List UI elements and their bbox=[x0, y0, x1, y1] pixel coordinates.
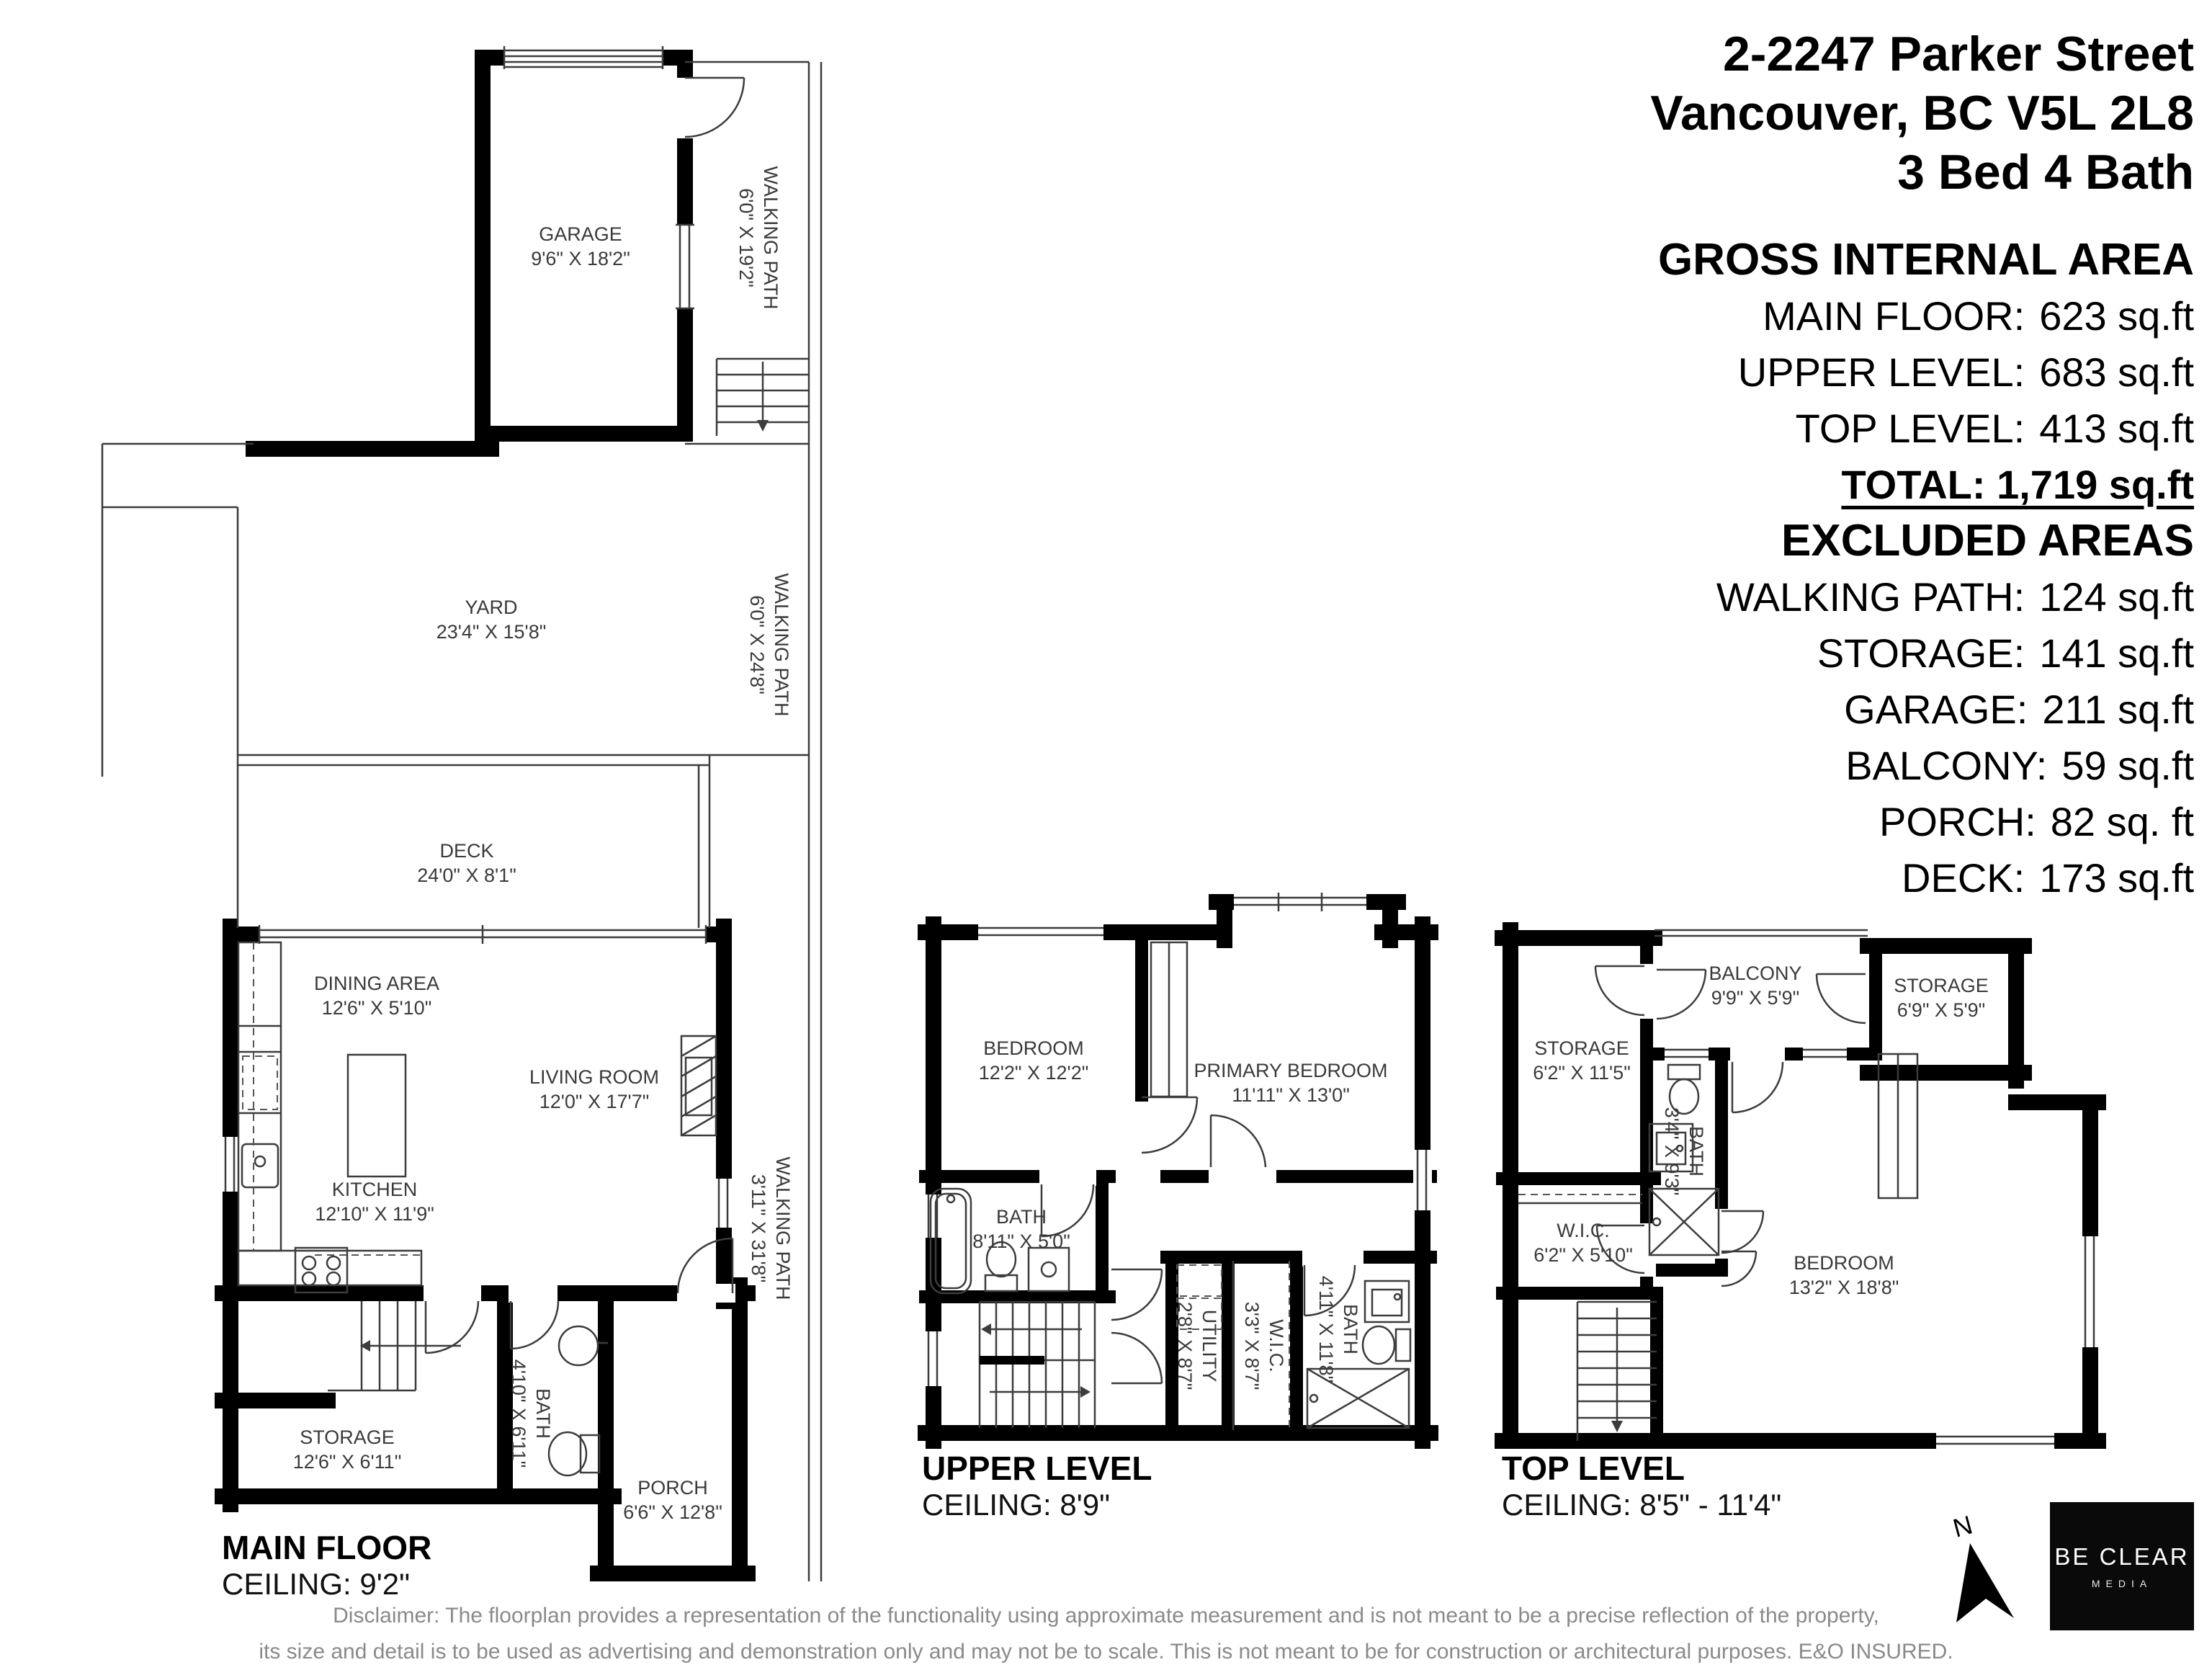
gross-area-title: GROSS INTERNAL AREA bbox=[1650, 232, 2194, 288]
room-label-wic-upper: W.I.C. 3'3" X 8'7" bbox=[1240, 1302, 1289, 1390]
room-dims: 9'6" X 18'2" bbox=[531, 246, 630, 271]
area-label: UPPER LEVEL: bbox=[1738, 349, 2025, 395]
room-dims: 12'6" X 6'11" bbox=[293, 1450, 402, 1474]
disclaimer-line: its size and detail is to be used as adv… bbox=[0, 1634, 2212, 1670]
area-value: 413 sq.ft bbox=[2039, 406, 2194, 451]
area-row: STORAGE:141 sq.ft bbox=[1650, 625, 2194, 682]
room-name: DINING AREA bbox=[314, 971, 439, 996]
room-label-walking-path-b: WALKING PATH 6'0" X 24'8" bbox=[745, 573, 794, 716]
room-name: WALKING PATH bbox=[769, 573, 794, 716]
area-value: 683 sq.ft bbox=[2039, 349, 2194, 395]
room-name: W.I.C. bbox=[1264, 1302, 1289, 1390]
logo-line2: MEDIA bbox=[2092, 1578, 2152, 1589]
room-label-balcony: BALCONY 9'9" X 5'9" bbox=[1709, 961, 1801, 1010]
room-dims: 11'11" X 13'0" bbox=[1194, 1083, 1387, 1107]
room-dims: 6'0" X 24'8" bbox=[745, 573, 769, 716]
info-column: 2-2247 Parker Street Vancouver, BC V5L 2… bbox=[1650, 24, 2194, 906]
area-label: WALKING PATH: bbox=[1716, 574, 2025, 620]
room-dims: 6'0" X 19'2" bbox=[734, 166, 758, 309]
room-label-bath-upper: BATH 8'11" X 5'0" bbox=[972, 1205, 1070, 1254]
room-dims: 6'9" X 5'9" bbox=[1894, 998, 1989, 1022]
floor-name: TOP LEVEL bbox=[1502, 1450, 1781, 1487]
room-name: BEDROOM bbox=[1789, 1251, 1899, 1275]
disclaimer-line: Disclaimer: The floorplan provides a rep… bbox=[0, 1598, 2212, 1634]
room-name: BATH bbox=[531, 1359, 555, 1468]
room-name: WALKING PATH bbox=[771, 1156, 795, 1300]
room-dims: 13'2" X 18'8" bbox=[1789, 1275, 1899, 1300]
room-name: BATH bbox=[1338, 1276, 1363, 1383]
area-label: DECK: bbox=[1902, 855, 2025, 901]
room-name: STORAGE bbox=[1894, 973, 1989, 998]
room-label-porch: PORCH 6'6" X 12'8" bbox=[623, 1475, 722, 1524]
area-label: MAIN FLOOR: bbox=[1763, 293, 2025, 339]
area-label: GARAGE: bbox=[1844, 687, 2028, 732]
logo-line1: BE CLEAR bbox=[2054, 1543, 2189, 1571]
floor-name: MAIN FLOOR bbox=[222, 1529, 431, 1566]
room-name: UTILITY bbox=[1197, 1302, 1222, 1390]
floor-ceiling: CEILING: 8'5" - 11'4" bbox=[1502, 1487, 1781, 1523]
area-row: BALCONY:59 sq.ft bbox=[1650, 738, 2194, 794]
area-value: 124 sq.ft bbox=[2039, 574, 2194, 620]
address-line: 2-2247 Parker Street bbox=[1650, 24, 2194, 84]
room-dims: 23'4" X 15'8" bbox=[436, 620, 547, 644]
floorplan-sheet: { "header": { "address_line1": "2-2247 P… bbox=[0, 0, 2212, 1660]
room-label-yard: YARD 23'4" X 15'8" bbox=[436, 595, 547, 644]
area-row: WALKING PATH:124 sq.ft bbox=[1650, 569, 2194, 625]
room-dims: 12'0" X 17'7" bbox=[529, 1089, 659, 1114]
room-name: W.I.C. bbox=[1533, 1218, 1633, 1243]
room-label-bath-top: BATH 3'4" X 9'3" bbox=[1660, 1107, 1709, 1196]
room-dims: 2'8" X 8'7" bbox=[1173, 1302, 1197, 1390]
floor-ceiling: CEILING: 9'2" bbox=[222, 1566, 431, 1602]
room-dims: 4'10" X 6'11" bbox=[506, 1359, 531, 1468]
floor-name: UPPER LEVEL bbox=[922, 1450, 1152, 1487]
room-label-kitchen: KITCHEN 12'10" X 11'9" bbox=[315, 1177, 434, 1226]
room-name: DECK bbox=[417, 839, 516, 863]
area-label: STORAGE: bbox=[1817, 630, 2025, 676]
area-row: PORCH:82 sq. ft bbox=[1650, 794, 2194, 850]
area-value: 173 sq.ft bbox=[2039, 855, 2194, 901]
room-dims: 8'11" X 5'0" bbox=[972, 1229, 1070, 1254]
room-dims: 9'9" X 5'9" bbox=[1709, 986, 1801, 1010]
excluded-areas-title: EXCLUDED AREAS bbox=[1650, 513, 2194, 569]
room-label-primary-bedroom: PRIMARY BEDROOM 11'11" X 13'0" bbox=[1194, 1058, 1387, 1107]
room-name: BATH bbox=[972, 1205, 1070, 1229]
room-name: STORAGE bbox=[1533, 1036, 1631, 1061]
room-dims: 4'11" X 11'8" bbox=[1314, 1276, 1338, 1383]
area-value: 211 sq.ft bbox=[2042, 687, 2194, 732]
room-dims: 3'3" X 8'7" bbox=[1240, 1302, 1264, 1390]
room-label-storage-left-top: STORAGE 6'2" X 11'5" bbox=[1533, 1036, 1631, 1085]
room-dims: 6'2" X 5'10" bbox=[1533, 1243, 1633, 1267]
room-dims: 12'10" X 11'9" bbox=[315, 1202, 434, 1226]
room-name: WALKING PATH bbox=[758, 166, 783, 309]
area-label: TOP LEVEL: bbox=[1796, 406, 2025, 451]
area-label: BALCONY: bbox=[1845, 743, 2047, 788]
area-value: 141 sq.ft bbox=[2039, 630, 2194, 676]
room-label-living: LIVING ROOM 12'0" X 17'7" bbox=[529, 1065, 659, 1114]
beclear-media-logo: BE CLEAR MEDIA bbox=[2050, 1502, 2194, 1630]
room-label-garage: GARAGE 9'6" X 18'2" bbox=[531, 222, 630, 271]
room-name: YARD bbox=[436, 595, 547, 620]
area-total: TOTAL: 1,719 sq.ft bbox=[1650, 457, 2194, 513]
disclaimer: Disclaimer: The floorplan provides a rep… bbox=[0, 1598, 2212, 1670]
room-label-storage-main: STORAGE 12'6" X 6'11" bbox=[293, 1425, 402, 1474]
area-value: 59 sq.ft bbox=[2061, 743, 2194, 788]
room-name: STORAGE bbox=[293, 1425, 402, 1450]
room-label-bath2-upper: BATH 4'11" X 11'8" bbox=[1314, 1276, 1363, 1383]
room-dims: 6'6" X 12'8" bbox=[623, 1500, 722, 1524]
room-label-bath-main: BATH 4'10" X 6'11" bbox=[506, 1359, 555, 1468]
address-line: Vancouver, BC V5L 2L8 bbox=[1650, 84, 2194, 143]
room-label-walking-path-c: WALKING PATH 3'11" X 31'8" bbox=[746, 1156, 795, 1300]
area-row: UPPER LEVEL:683 sq.ft bbox=[1650, 344, 2194, 401]
room-label-deck: DECK 24'0" X 8'1" bbox=[417, 839, 516, 888]
floor-title-top: TOP LEVEL CEILING: 8'5" - 11'4" bbox=[1502, 1450, 1781, 1523]
address-line: 3 Bed 4 Bath bbox=[1650, 143, 2194, 202]
room-dims: 3'11" X 31'8" bbox=[746, 1156, 771, 1300]
room-dims: 6'2" X 11'5" bbox=[1533, 1061, 1631, 1085]
floor-title-upper: UPPER LEVEL CEILING: 8'9" bbox=[922, 1450, 1152, 1523]
room-dims: 3'4" X 9'3" bbox=[1660, 1107, 1684, 1196]
room-name: LIVING ROOM bbox=[529, 1065, 659, 1089]
room-label-walking-path-a: WALKING PATH 6'0" X 19'2" bbox=[734, 166, 783, 309]
room-label-storage-right-top: STORAGE 6'9" X 5'9" bbox=[1894, 973, 1989, 1022]
area-value: 623 sq.ft bbox=[2039, 293, 2194, 339]
area-row: MAIN FLOOR:623 sq.ft bbox=[1650, 288, 2194, 344]
room-name: BALCONY bbox=[1709, 961, 1801, 986]
floor-title-main: MAIN FLOOR CEILING: 9'2" bbox=[222, 1529, 431, 1602]
room-label-utility: UTILITY 2'8" X 8'7" bbox=[1173, 1302, 1222, 1390]
floor-ceiling: CEILING: 8'9" bbox=[922, 1487, 1152, 1523]
area-row: TOP LEVEL:413 sq.ft bbox=[1650, 401, 2194, 457]
room-name: BATH bbox=[1684, 1107, 1709, 1196]
area-row: DECK:173 sq.ft bbox=[1650, 850, 2194, 906]
room-name: GARAGE bbox=[531, 222, 630, 246]
room-name: PORCH bbox=[623, 1475, 722, 1500]
room-label-wic-top: W.I.C. 6'2" X 5'10" bbox=[1533, 1218, 1633, 1267]
room-name: KITCHEN bbox=[315, 1177, 434, 1202]
room-label-dining: DINING AREA 12'6" X 5'10" bbox=[314, 971, 439, 1020]
room-label-bedroom-top: BEDROOM 13'2" X 18'8" bbox=[1789, 1251, 1899, 1300]
area-value: 82 sq. ft bbox=[2051, 799, 2194, 844]
room-name: BEDROOM bbox=[979, 1036, 1089, 1061]
room-dims: 12'6" X 5'10" bbox=[314, 996, 439, 1020]
room-label-bedroom-upper: BEDROOM 12'2" X 12'2" bbox=[979, 1036, 1089, 1085]
room-dims: 12'2" X 12'2" bbox=[979, 1061, 1089, 1085]
area-row: GARAGE:211 sq.ft bbox=[1650, 682, 2194, 738]
room-name: PRIMARY BEDROOM bbox=[1194, 1058, 1387, 1083]
room-dims: 24'0" X 8'1" bbox=[417, 863, 516, 888]
area-label: PORCH: bbox=[1879, 799, 2036, 844]
